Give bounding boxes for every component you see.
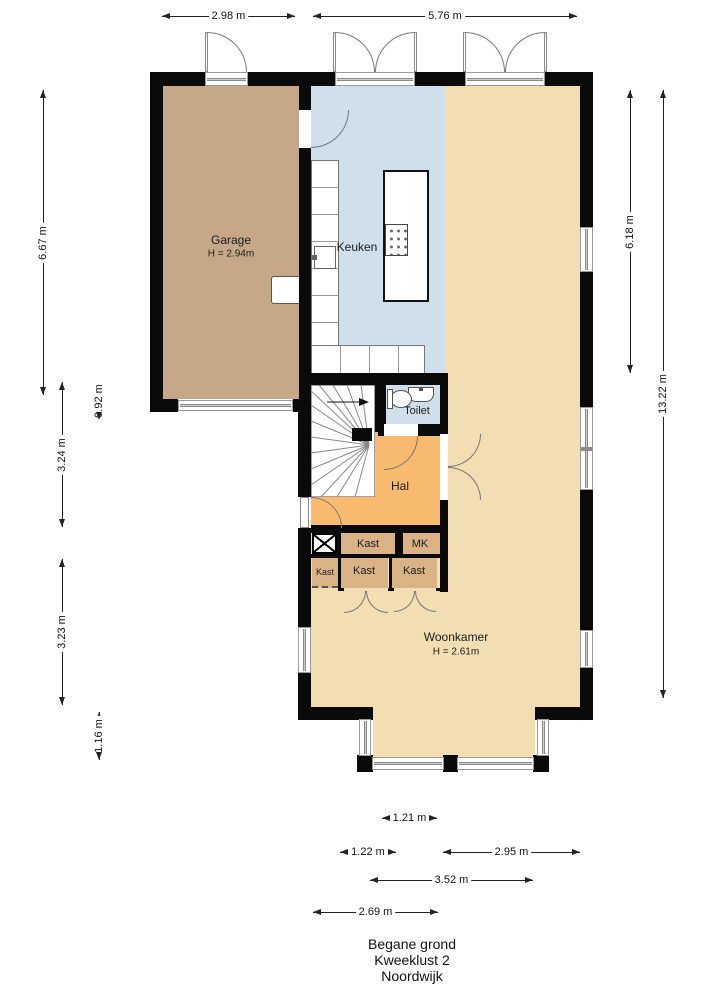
dim-bottom-bay: 3.52 m (370, 874, 533, 886)
wall-segment (337, 533, 341, 554)
toilet-cistern (387, 389, 393, 409)
wall-segment (580, 72, 593, 227)
wall-segment (248, 72, 335, 86)
bay-front-window (372, 757, 444, 770)
door-swing-arc (375, 32, 415, 72)
bay-side-window (537, 719, 549, 756)
room-woonkamer-bay-fill (373, 720, 535, 758)
door-swing-arc (465, 32, 505, 72)
room-height-garage: H = 2.94m (208, 249, 254, 260)
room-label-kast-right: Kast (403, 565, 425, 577)
plan-title-address: Kweeklust 2 (368, 952, 456, 968)
wall-segment (440, 500, 448, 533)
door-leaf (333, 32, 336, 72)
room-label-garage: Garage (211, 233, 251, 247)
door-leaf (463, 32, 466, 72)
door-swing-arc (335, 32, 375, 72)
garage-boiler-cabinet (271, 276, 301, 304)
dim-left-lower: 3.23 m (56, 559, 68, 705)
door-threshold (335, 72, 415, 86)
bay-side-window (359, 719, 371, 756)
stairs (311, 385, 375, 497)
dim-right-total: 13.22 m (657, 90, 669, 698)
wall-segment (298, 528, 311, 627)
dim-bottom-left: 1.22 m (340, 846, 396, 858)
room-label-toilet: Toilet (404, 405, 430, 417)
door-swing-arc (207, 32, 247, 72)
dim-right-upper: 6.18 m (624, 90, 636, 373)
window-mullion (581, 447, 592, 451)
room-woonkamer-fill (445, 86, 580, 720)
dim-left-mid: 3.24 m (56, 382, 68, 527)
kitchen-faucet-icon (312, 255, 317, 260)
door-threshold (465, 72, 545, 86)
stair-newel-wall (352, 428, 372, 441)
wall-segment (440, 533, 448, 592)
room-label-kast-top: Kast (357, 538, 379, 550)
wall-segment (415, 72, 465, 86)
room-label-hal: Hal (391, 479, 409, 493)
dim-left-offset: 0.92 m (93, 382, 105, 420)
bay-front-window (457, 757, 534, 770)
dim-top-main: 5.76 m (313, 10, 577, 22)
door-leaf (414, 32, 417, 72)
door-opening (384, 424, 418, 436)
kitchen-counter-bottom (311, 345, 425, 374)
wall-segment (436, 588, 448, 591)
wall-segment (580, 490, 593, 630)
wall-segment (299, 86, 311, 110)
wall-segment (395, 533, 403, 554)
plan-title-city: Noordwijk (368, 968, 456, 984)
wall-segment (440, 385, 448, 434)
bay-corner-post (533, 755, 549, 772)
window (298, 627, 311, 673)
door-leaf (205, 32, 208, 72)
wall-segment (580, 272, 593, 407)
plan-title-block: Begane grond Kweeklust 2 Noordwijk (368, 936, 456, 984)
shaft-box (312, 533, 337, 554)
dim-bottom-front: 2.69 m (313, 906, 438, 918)
wall-segment (311, 373, 448, 385)
kast-left-dashed-edge (312, 586, 338, 588)
wall-segment (338, 558, 341, 588)
door-threshold (205, 72, 248, 86)
window (580, 630, 593, 668)
room-label-kast-mid: Kast (353, 565, 375, 577)
floorplan-canvas: Garage H = 2.94m Keuken Toilet Hal Woonk… (0, 0, 707, 1000)
room-height-woonkamer: H = 2.61m (433, 647, 479, 658)
cooktop-icon (385, 224, 408, 256)
plan-title-floor: Begane grond (368, 936, 456, 952)
wall-segment (311, 554, 440, 558)
door-leaf (544, 32, 547, 72)
door-opening (440, 434, 448, 500)
wall-segment (150, 72, 163, 412)
room-label-woonkamer: Woonkamer (424, 630, 488, 644)
window (580, 227, 593, 272)
dim-left-garage: 6.67 m (37, 90, 49, 395)
wall-segment (298, 399, 311, 497)
door-leaf (300, 497, 309, 528)
room-label-kast-left: Kast (316, 567, 334, 577)
room-label-mk: MK (412, 538, 429, 550)
dim-bottom-bay-inner: 1.21 m (382, 812, 437, 824)
toilet-basin-tap-icon (419, 388, 423, 391)
bay-corner-post (443, 755, 458, 772)
window (178, 400, 293, 411)
wall-segment (299, 148, 311, 399)
room-label-keuken: Keuken (337, 240, 378, 254)
door-swing-arc (505, 32, 545, 72)
dim-left-bay: 1.16 m (93, 712, 105, 760)
kitchen-sink (314, 246, 336, 269)
bay-corner-post (357, 755, 373, 772)
wall-segment (389, 558, 392, 588)
door-opening (299, 110, 311, 148)
dim-bottom-right: 2.95 m (443, 846, 580, 858)
wall-segment (150, 399, 178, 412)
dim-top-garage: 2.98 m (162, 10, 295, 22)
